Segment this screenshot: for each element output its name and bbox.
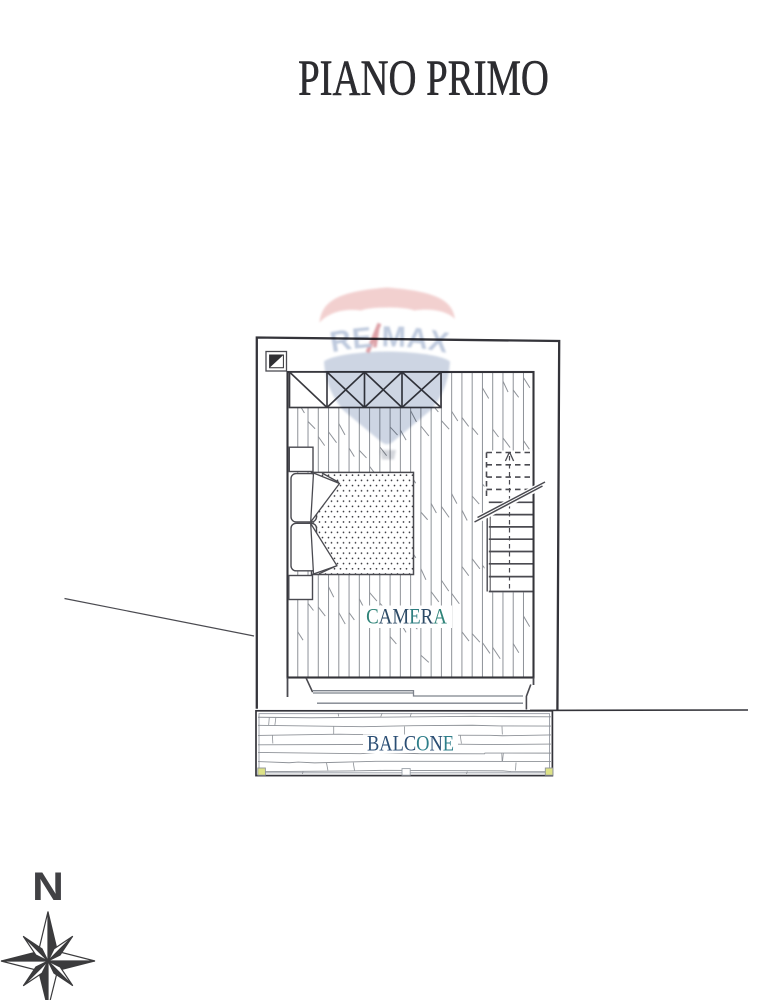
svg-text:PIANO PRIMO: PIANO PRIMO — [298, 50, 549, 106]
svg-text:BALCONE: BALCONE — [367, 732, 454, 756]
svg-text:CAMERA: CAMERA — [366, 604, 447, 629]
svg-text:N: N — [32, 864, 64, 909]
